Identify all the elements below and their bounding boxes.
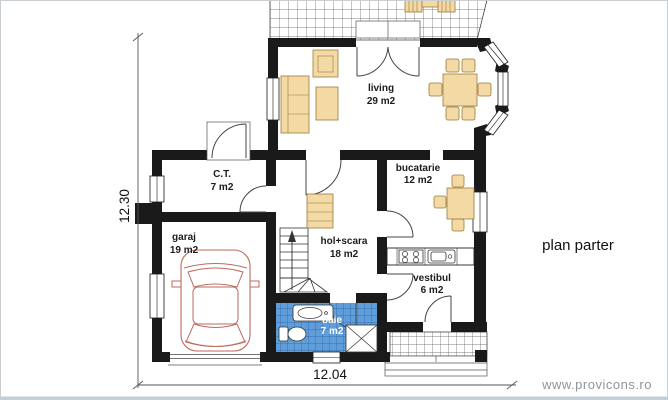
room-area-ct: 7 m2 xyxy=(211,182,234,193)
armchair xyxy=(313,50,338,77)
stove xyxy=(399,250,423,263)
kitchen-counter xyxy=(387,248,474,265)
dim-width-label: 12.04 xyxy=(313,367,347,382)
floor-plan-drawing: C.T. 7 m2 garaj 19 m2 living 29 m2 bucat… xyxy=(0,0,668,400)
terrace-top xyxy=(270,0,487,40)
toilet xyxy=(279,327,306,341)
floor-plan-page: C.T. 7 m2 garaj 19 m2 living 29 m2 bucat… xyxy=(0,0,668,400)
room-area-garaj: 19 m2 xyxy=(170,245,199,256)
coffee-table xyxy=(316,87,338,120)
room-label-baie: baie xyxy=(322,315,342,326)
room-label-hol: hol+scara xyxy=(321,236,368,247)
sofa xyxy=(281,76,309,133)
dim-height-label: 12.30 xyxy=(117,189,132,223)
room-label-ct: C.T. xyxy=(213,169,231,180)
room-label-bucatarie: bucatarie xyxy=(396,163,441,174)
watermark: www.provicons.ro xyxy=(541,377,652,392)
room-area-baie: 7 m2 xyxy=(321,326,344,337)
terrace-threshold xyxy=(356,21,420,38)
room-area-hol: 18 m2 xyxy=(330,249,359,260)
room-area-living: 29 m2 xyxy=(367,96,396,107)
ct-entry-recess xyxy=(207,122,250,160)
room-area-bucatarie: 12 m2 xyxy=(404,175,433,186)
room-area-vestibul: 6 m2 xyxy=(421,285,444,296)
plan-title: plan parter xyxy=(542,237,614,254)
room-label-garaj: garaj xyxy=(172,232,196,243)
shower xyxy=(346,325,377,352)
room-label-living: living xyxy=(368,83,394,94)
hall-cabinet xyxy=(307,194,333,228)
entrance-porch xyxy=(385,332,487,376)
room-label-vestibul: vestibul xyxy=(413,273,451,284)
kitchen-sink xyxy=(428,250,455,263)
bottom-border-band xyxy=(0,397,668,400)
car xyxy=(172,250,259,351)
